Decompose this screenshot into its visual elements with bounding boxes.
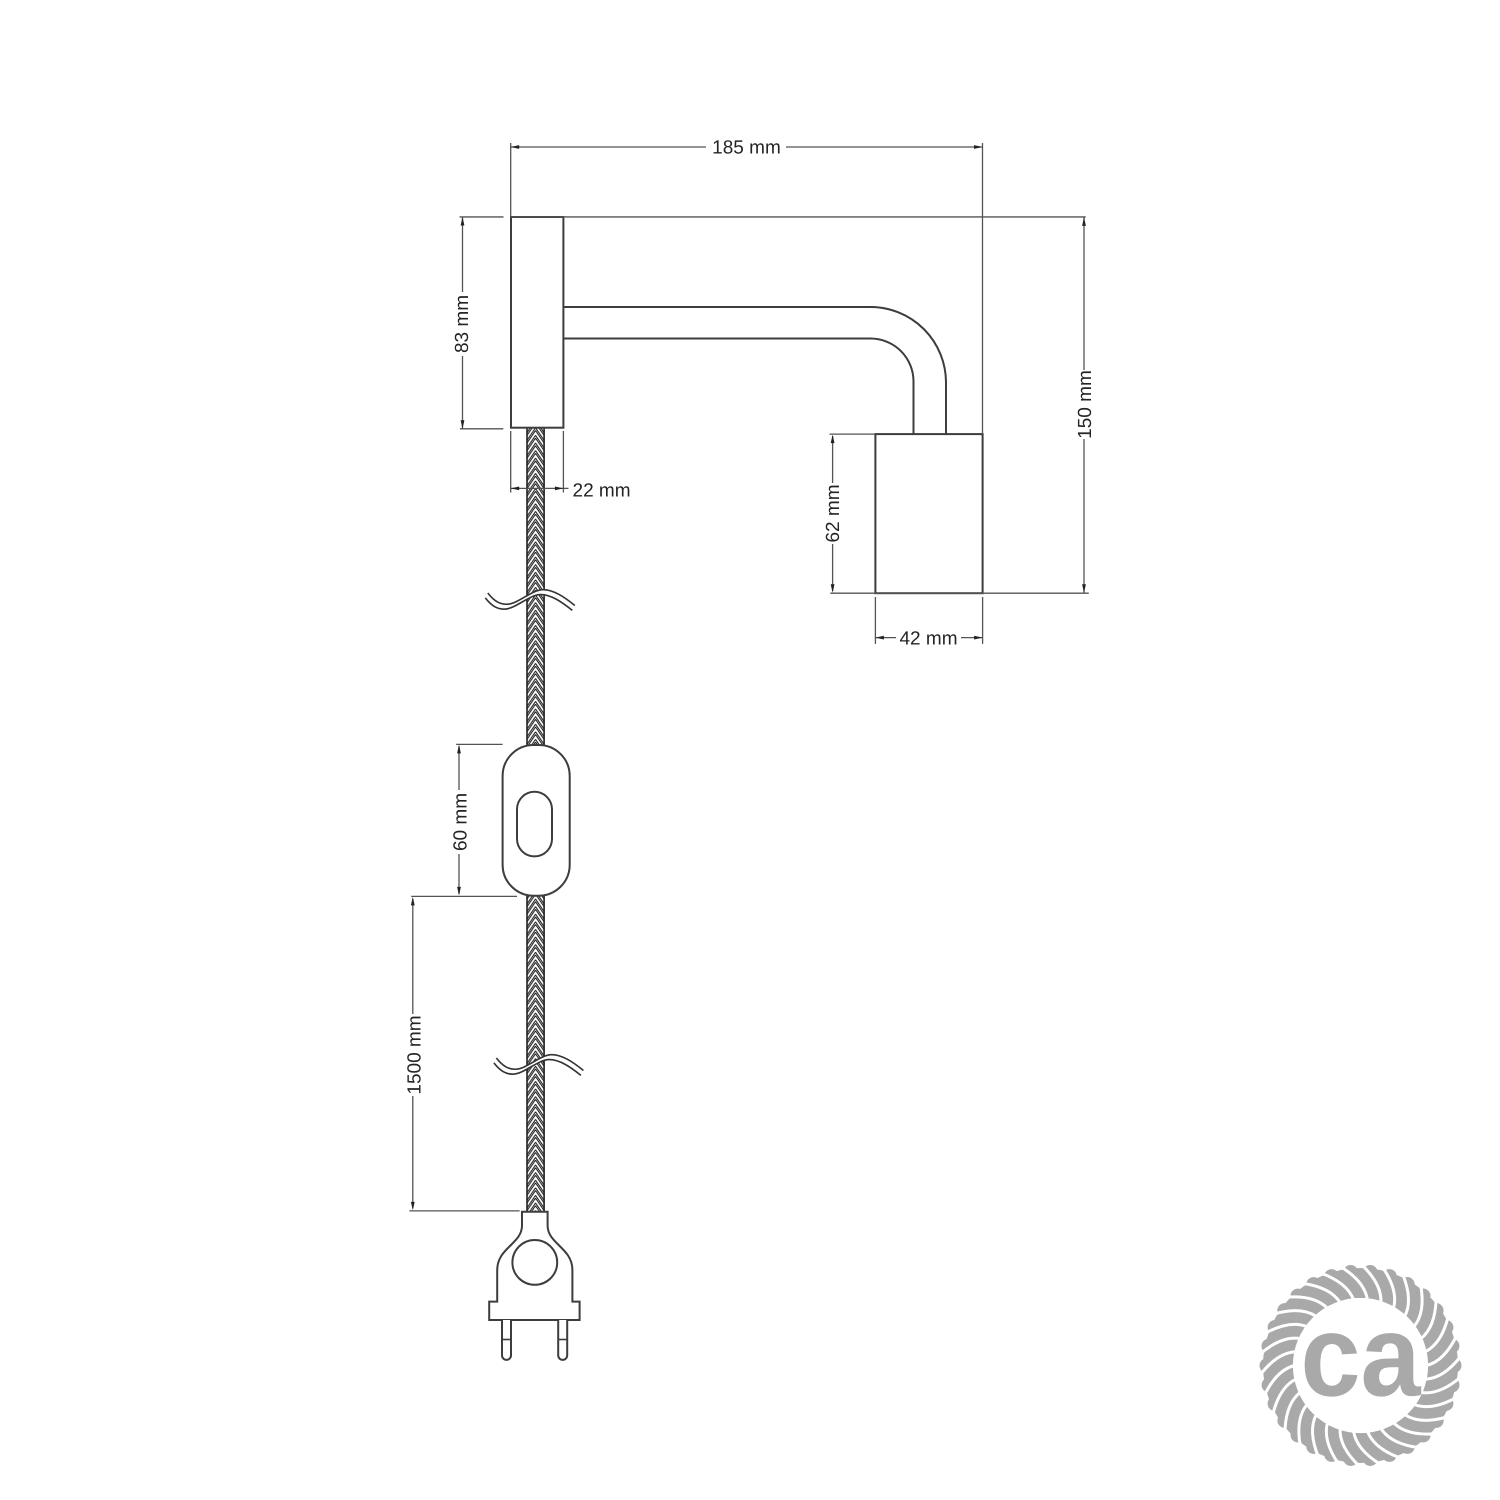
svg-text:42 mm: 42 mm bbox=[899, 629, 957, 650]
svg-text:1500 mm: 1500 mm bbox=[405, 1015, 426, 1094]
svg-text:ca: ca bbox=[1301, 1291, 1422, 1421]
svg-text:62 mm: 62 mm bbox=[823, 484, 844, 542]
svg-text:83 mm: 83 mm bbox=[452, 295, 473, 353]
svg-text:150 mm: 150 mm bbox=[1075, 370, 1096, 439]
svg-text:22 mm: 22 mm bbox=[573, 481, 631, 502]
svg-text:60 mm: 60 mm bbox=[451, 793, 472, 851]
svg-text:185 mm: 185 mm bbox=[712, 138, 781, 159]
